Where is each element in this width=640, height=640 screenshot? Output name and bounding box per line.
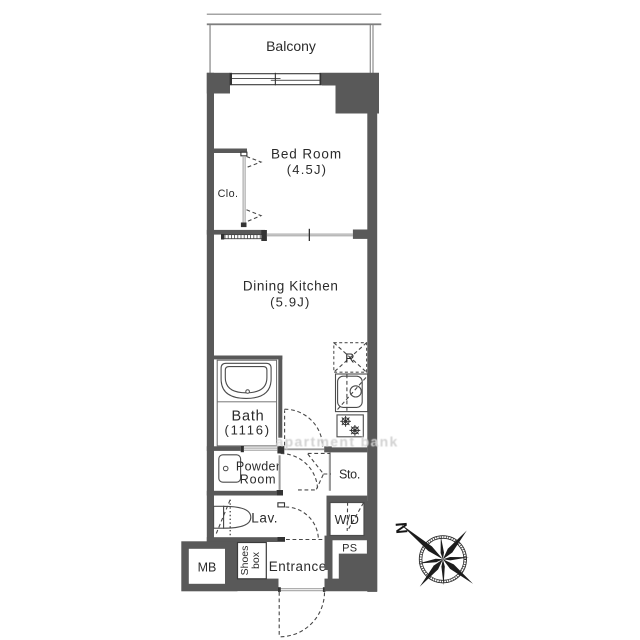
svg-text:Sto.: Sto.: [339, 468, 360, 482]
svg-text:(1116): (1116): [224, 423, 270, 438]
svg-text:Lav.: Lav.: [251, 511, 278, 526]
svg-text:Balcony: Balcony: [266, 38, 316, 54]
svg-text:(4.5J): (4.5J): [287, 162, 327, 177]
svg-text:N: N: [394, 521, 412, 534]
svg-text:Bed Room: Bed Room: [271, 147, 342, 162]
svg-text:PS: PS: [342, 543, 357, 555]
svg-text:MB: MB: [198, 561, 217, 575]
svg-text:Dining Kitchen: Dining Kitchen: [243, 279, 339, 294]
svg-text:R: R: [345, 351, 354, 366]
svg-text:box: box: [250, 551, 262, 569]
svg-text:(5.9J): (5.9J): [270, 295, 310, 310]
svg-text:Entrance: Entrance: [269, 559, 327, 574]
svg-text:Clo.: Clo.: [218, 188, 239, 200]
svg-text:apartment bank: apartment bank: [276, 433, 399, 449]
svg-text:Room: Room: [240, 472, 277, 486]
